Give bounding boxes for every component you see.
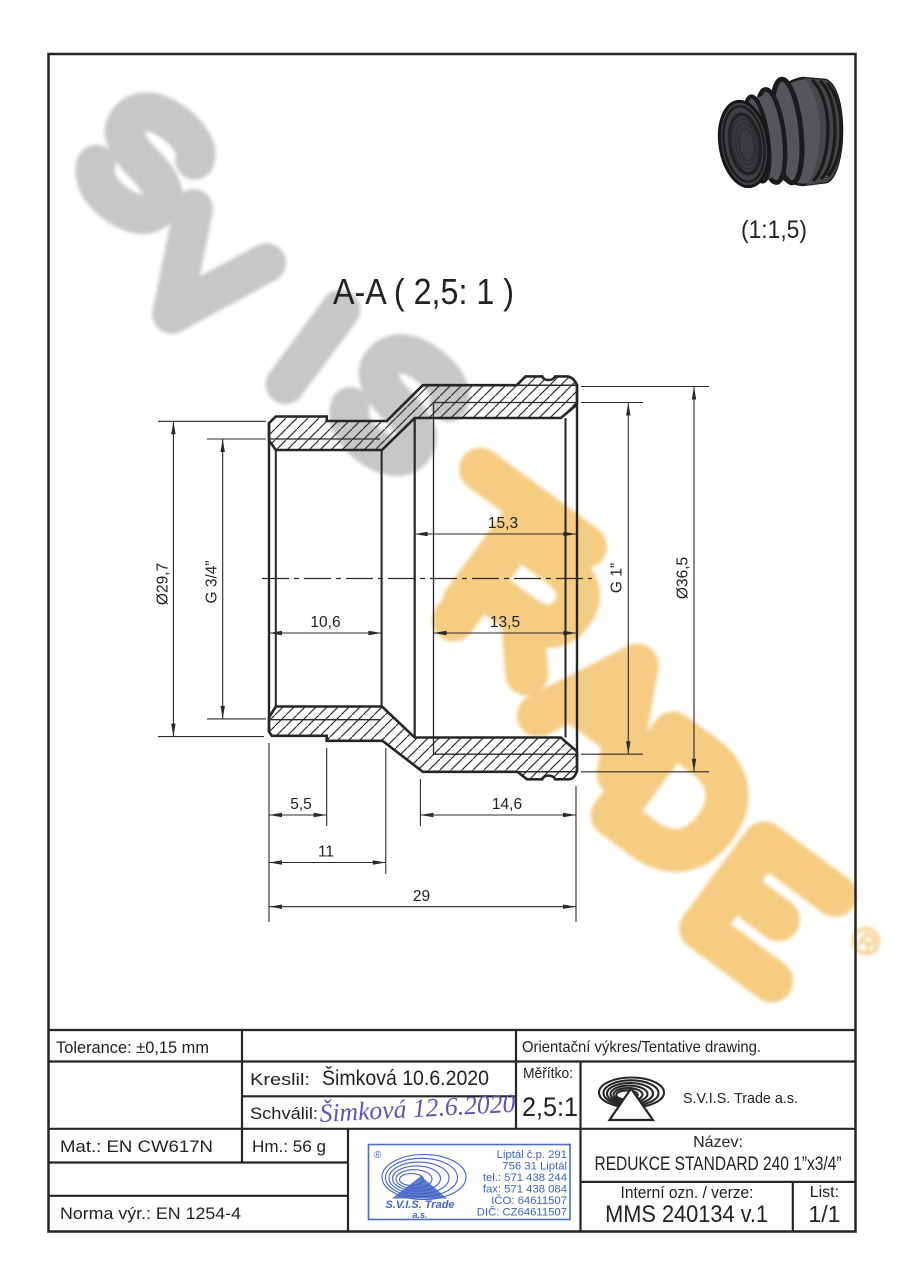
svg-text:Mat.: EN CW617N: Mat.: EN CW617N	[60, 1137, 213, 1156]
svg-text:fax: 571 438 084: fax: 571 438 084	[483, 1184, 567, 1196]
svg-text:Měřítko:: Měřítko:	[523, 1065, 573, 1082]
svg-text:A-A ( 2,5: 1 ): A-A ( 2,5: 1 )	[333, 271, 514, 312]
svg-text:(1:1,5): (1:1,5)	[741, 216, 807, 244]
svg-text:G 1”: G 1”	[609, 563, 626, 593]
svg-text:Orientační výkres/Tentative dr: Orientační výkres/Tentative drawing.	[522, 1039, 761, 1056]
svg-text:15,3: 15,3	[488, 515, 518, 532]
svg-text:a.s.: a.s.	[412, 1210, 427, 1220]
svg-text:MMS 240134 v.1: MMS 240134 v.1	[605, 1201, 768, 1228]
svg-text:10,6: 10,6	[310, 614, 340, 631]
svg-text:5,5: 5,5	[290, 796, 312, 813]
svg-text:Schválil:: Schválil:	[250, 1104, 318, 1123]
svg-text:G 3/4”: G 3/4”	[204, 560, 221, 603]
svg-text:REDUKCE STANDARD 240 1”x3/4”: REDUKCE STANDARD 240 1”x3/4”	[595, 1154, 842, 1175]
svg-text:Norma výr.: EN 1254-4: Norma výr.: EN 1254-4	[60, 1204, 241, 1223]
svg-text:Ø29,7: Ø29,7	[155, 563, 172, 605]
svg-text:756 31 Liptál: 756 31 Liptál	[502, 1161, 567, 1173]
svg-text:11: 11	[318, 844, 334, 861]
svg-text:S.V.I.S. Trade a.s.: S.V.I.S. Trade a.s.	[683, 1090, 798, 1107]
svg-text:13,5: 13,5	[490, 614, 520, 631]
svg-text:2,5:1: 2,5:1	[522, 1092, 578, 1122]
svg-text:Šimková 10.6.2020: Šimková 10.6.2020	[322, 1067, 489, 1090]
svg-text:IČO: 64611507: IČO: 64611507	[491, 1194, 567, 1207]
svg-text:Kreslil:: Kreslil:	[250, 1070, 310, 1089]
svg-text:List:: List:	[810, 1184, 839, 1201]
svg-text:Interní ozn. / verze:: Interní ozn. / verze:	[621, 1184, 754, 1202]
svg-text:DIČ: CZ64611507: DIČ: CZ64611507	[477, 1206, 567, 1219]
svg-text:29: 29	[413, 888, 430, 905]
svg-text:Název:: Název:	[693, 1134, 743, 1151]
svg-text:®: ®	[374, 1150, 382, 1161]
svg-text:Tolerance: ±0,15 mm: Tolerance: ±0,15 mm	[56, 1038, 209, 1057]
svg-text:tel.: 571 438 244: tel.: 571 438 244	[483, 1172, 567, 1184]
svg-text:Liptál č.p. 291: Liptál č.p. 291	[497, 1149, 567, 1161]
svg-text:1/1: 1/1	[808, 1201, 840, 1227]
svg-text:Ø36,5: Ø36,5	[675, 557, 692, 599]
svg-text:Hm.: 56 g: Hm.: 56 g	[252, 1137, 326, 1156]
svg-text:14,6: 14,6	[492, 796, 522, 813]
